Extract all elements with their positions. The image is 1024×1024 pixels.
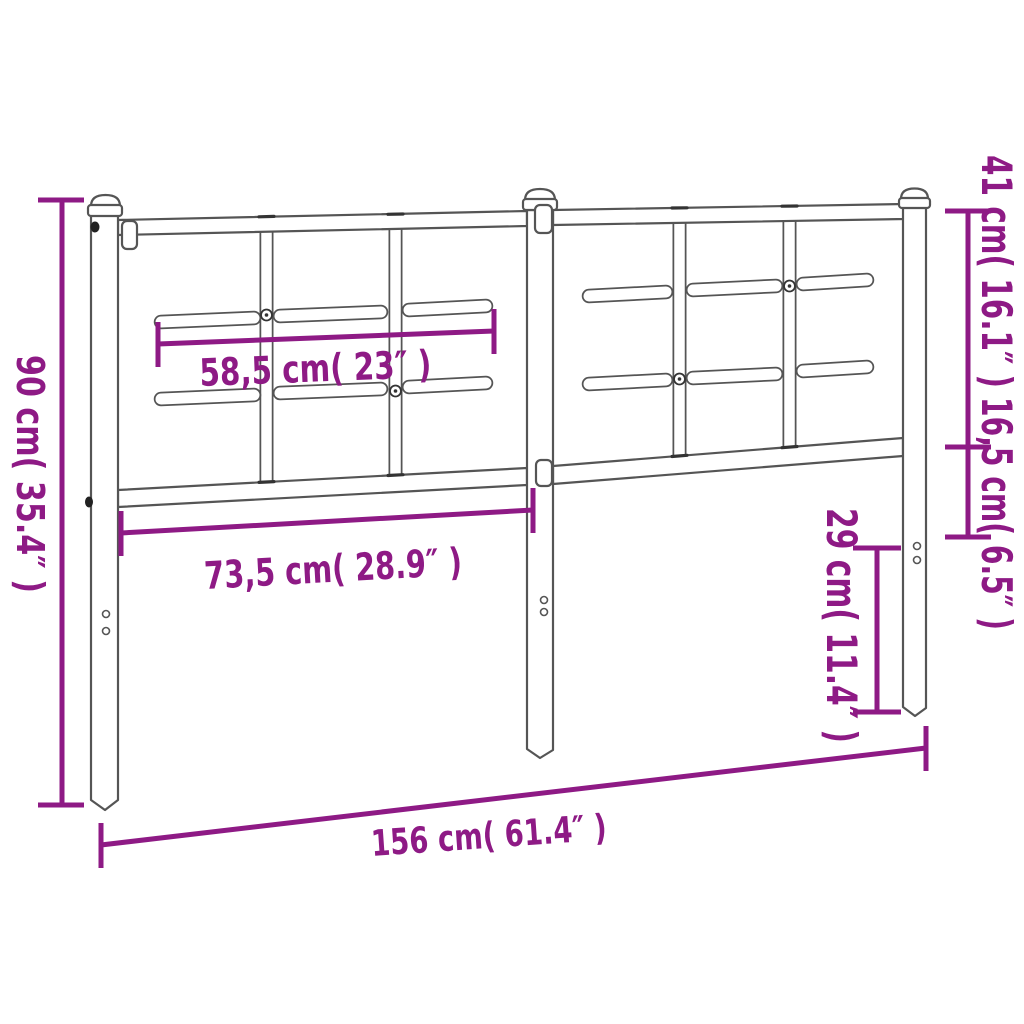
rail-joint-mark xyxy=(388,475,403,476)
headboard-frame xyxy=(85,189,930,811)
rail-to-mount-height-label: 16,5 cm( 6.5″ ) xyxy=(972,397,1021,630)
screw xyxy=(674,374,685,385)
rail-joint-mark xyxy=(672,455,687,456)
dimension-panel-height: 41 cm( 16.1″ ) 16,5 cm( 6.5″ ) xyxy=(945,155,1021,630)
overall-width-label: 156 cm( 61.4″ ) xyxy=(370,808,608,865)
mount-hole xyxy=(914,543,921,550)
top-rail-left xyxy=(118,211,527,235)
lower-rail-left xyxy=(118,468,527,507)
screw xyxy=(261,310,272,321)
crossbar-left-upper xyxy=(161,306,486,322)
lower-rail-right xyxy=(553,438,903,484)
rail-joint-mark xyxy=(782,447,797,448)
mount-hole xyxy=(541,597,548,604)
panel-height-label: 41 cm( 16.1″ ) xyxy=(972,155,1021,388)
mount-hole xyxy=(541,609,548,616)
dimension-leg-height: 29 cm( 11.4″ ) xyxy=(817,508,901,743)
crossbar-right-lower xyxy=(589,367,867,384)
screw xyxy=(784,281,795,292)
bolt xyxy=(91,222,100,233)
lower-rail-width-label: 73,5 cm( 28.9″ ) xyxy=(203,540,463,598)
bracket-center-lower xyxy=(536,460,552,486)
overall-height-label: 90 cm( 35.4″ ) xyxy=(8,355,52,593)
crossbar-width-label: 58,5 cm( 23″ ) xyxy=(199,342,433,395)
post-left xyxy=(91,215,118,810)
mount-hole xyxy=(914,557,921,564)
rail-joint-mark xyxy=(259,482,274,483)
bracket-center-top xyxy=(535,205,552,233)
headboard-dimension-diagram: 90 cm( 35.4″ ) 58,5 cm( 23″ ) 73,5 cm( 2… xyxy=(0,0,1024,1024)
mount-hole xyxy=(103,611,110,618)
bracket-left-top xyxy=(122,221,137,249)
leg-height-label: 29 cm( 11.4″ ) xyxy=(817,508,866,743)
diagram-canvas: 90 cm( 35.4″ ) 58,5 cm( 23″ ) 73,5 cm( 2… xyxy=(0,0,1024,1024)
top-rail-right xyxy=(553,204,905,225)
dimension-overall-width: 156 cm( 61.4″ ) xyxy=(101,726,926,868)
crossbar-right-upper xyxy=(589,280,867,296)
cap-right xyxy=(899,189,930,209)
mount-hole xyxy=(103,628,110,635)
cap-left xyxy=(88,195,122,216)
post-right xyxy=(903,205,926,716)
dimension-overall-height: 90 cm( 35.4″ ) xyxy=(8,200,84,805)
bolt xyxy=(85,497,93,508)
